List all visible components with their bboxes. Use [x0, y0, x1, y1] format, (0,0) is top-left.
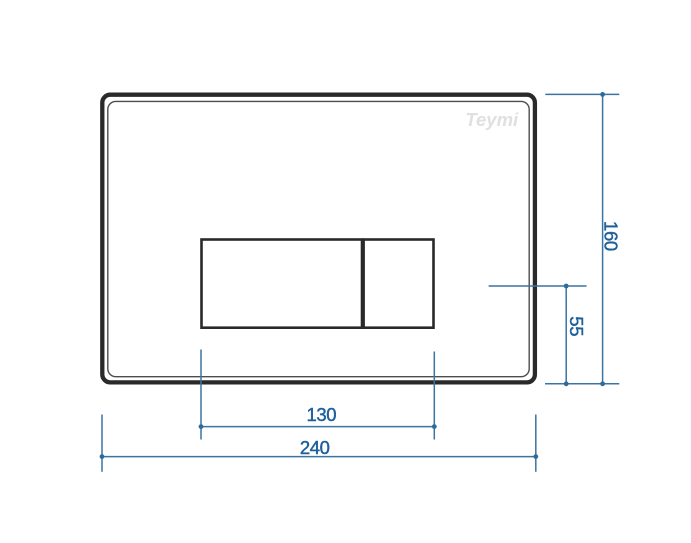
svg-text:240: 240 [300, 437, 330, 458]
svg-text:55: 55 [566, 316, 587, 336]
svg-text:Teymi: Teymi [465, 109, 519, 130]
svg-text:130: 130 [306, 404, 336, 425]
svg-text:160: 160 [601, 221, 622, 251]
